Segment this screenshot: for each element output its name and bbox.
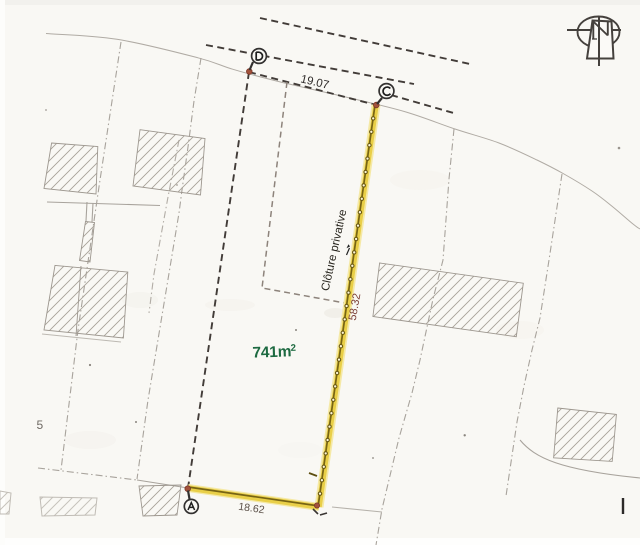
svg-text:741m: 741m	[252, 343, 291, 361]
svg-text:2: 2	[291, 343, 297, 354]
svg-text:5: 5	[37, 418, 44, 432]
